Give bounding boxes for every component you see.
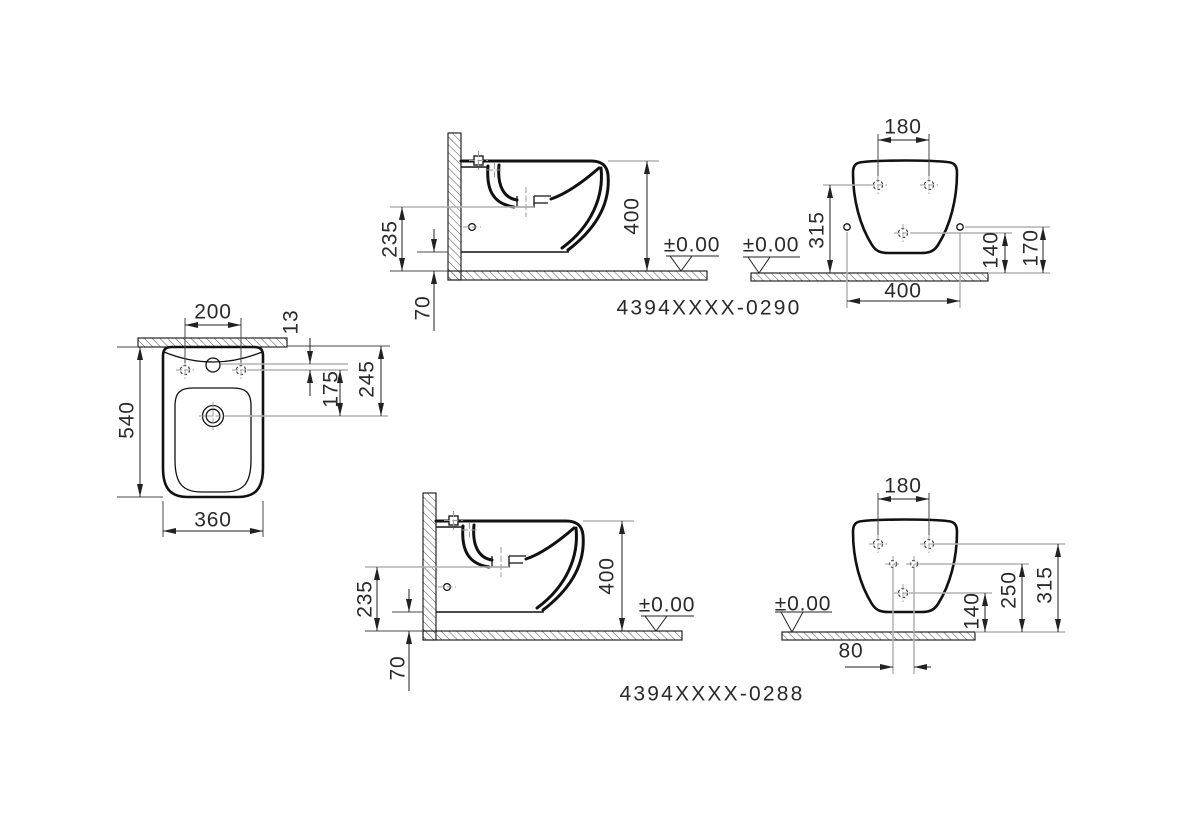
technical-drawing: 235 400 70 ±0.00 4394XXXX-0290 180 315 1… — [0, 0, 1190, 840]
dim-label-170: 170 — [1021, 229, 1042, 266]
dim-label-360: 360 — [194, 510, 231, 531]
dim-label-180: 180 — [884, 117, 921, 138]
dim-label-13: 13 — [281, 310, 302, 335]
datum-label: ±0.00 — [743, 235, 799, 256]
datum-level-symbol — [743, 257, 800, 273]
dim-label-400: 400 — [597, 557, 618, 594]
product-code-0288: 4394XXXX-0288 — [619, 684, 804, 705]
plan-view — [117, 318, 390, 537]
dim-label-315: 315 — [807, 211, 828, 248]
dim-label-180: 180 — [884, 476, 921, 497]
datum-label: ±0.00 — [639, 595, 695, 616]
dim-label-80: 80 — [839, 641, 864, 662]
product-code-0290: 4394XXXX-0290 — [616, 298, 801, 319]
dim-label-70: 70 — [388, 656, 409, 681]
dim-label-200: 200 — [194, 302, 231, 323]
drawing-canvas — [0, 0, 1190, 840]
side-view-0288 — [365, 493, 694, 691]
dim-label-235: 235 — [355, 580, 376, 617]
datum-label: ±0.00 — [775, 594, 831, 615]
floor-hatch — [751, 273, 988, 281]
floor-hatch — [782, 632, 975, 640]
dim-label-250: 250 — [999, 571, 1020, 608]
front-view-0288 — [775, 493, 1065, 674]
dim-label-540: 540 — [117, 401, 138, 438]
dim-label-315: 315 — [1035, 566, 1056, 603]
datum-label: ±0.00 — [664, 235, 720, 256]
wall-plug-right — [957, 224, 963, 230]
dim-label-235: 235 — [380, 220, 401, 257]
dim-label-245: 245 — [357, 360, 378, 397]
dim-label-400: 400 — [884, 281, 921, 302]
dim-label-140: 140 — [981, 231, 1002, 268]
dim-label-175: 175 — [321, 370, 342, 407]
dim-label-140: 140 — [962, 592, 983, 629]
wall-hatch — [138, 338, 287, 347]
dim-label-400: 400 — [622, 197, 643, 234]
wall-plug-left — [844, 224, 850, 230]
dim-label-70: 70 — [413, 296, 434, 321]
